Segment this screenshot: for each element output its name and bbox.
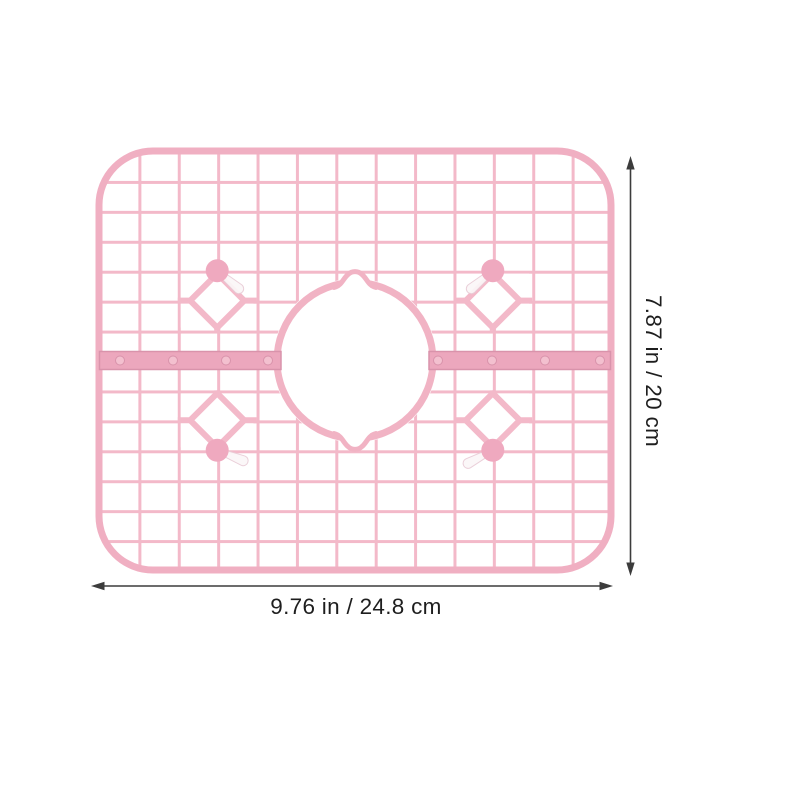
mounting-bar-left <box>100 352 282 370</box>
rivet <box>541 356 550 365</box>
width-dimension-label: 9.76 in / 24.8 cm <box>206 594 506 620</box>
arrowhead-left-icon <box>91 582 105 590</box>
product-dimension-diagram: 9.76 in / 24.8 cm 7.87 in / 20 cm <box>0 0 800 800</box>
arrowhead-right-icon <box>600 582 614 590</box>
mounting-bar-right <box>429 352 611 370</box>
rivet <box>264 356 273 365</box>
arrowhead-down-icon <box>626 563 634 577</box>
rivet <box>222 356 231 365</box>
rivet <box>169 356 178 365</box>
drain-ring <box>277 283 433 439</box>
rivet <box>434 356 443 365</box>
height-dimension-label: 7.87 in / 20 cm <box>640 221 666 521</box>
rivet <box>488 356 497 365</box>
rivet <box>596 356 605 365</box>
height-dimension-arrow <box>626 156 634 576</box>
sink-mat-illustration <box>0 0 800 800</box>
arrowhead-up-icon <box>626 156 634 170</box>
width-dimension-arrow <box>91 582 613 590</box>
rivet <box>116 356 125 365</box>
